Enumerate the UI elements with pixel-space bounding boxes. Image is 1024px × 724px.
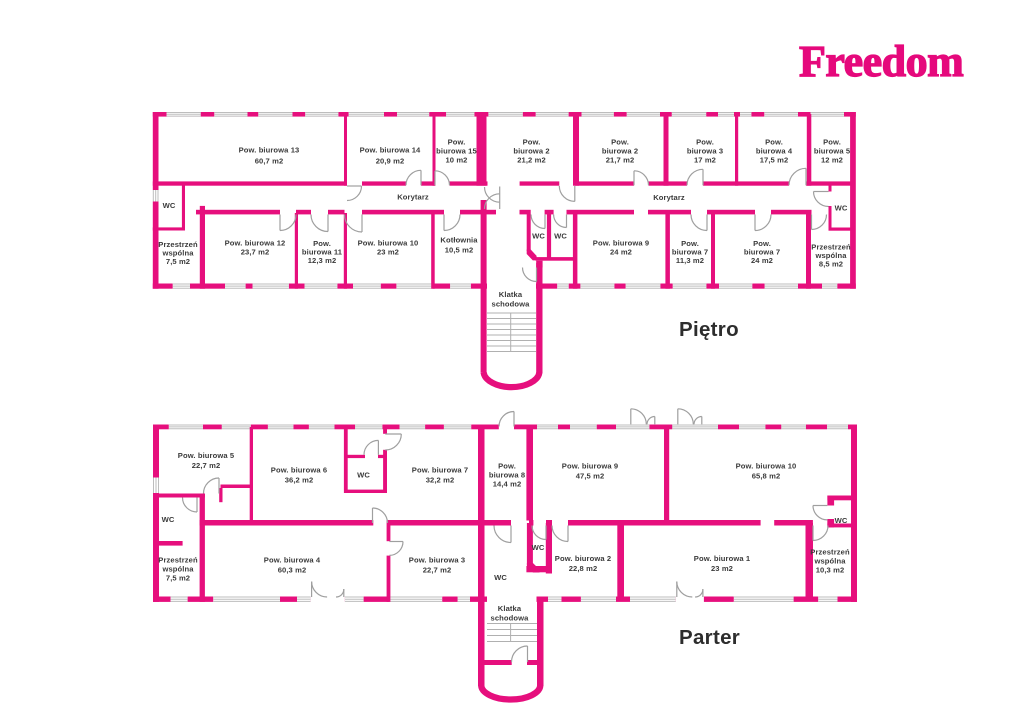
svg-text:Klatka: Klatka — [499, 290, 523, 299]
svg-text:7,5 m2: 7,5 m2 — [166, 257, 190, 266]
svg-text:Pow. biurowa 9: Pow. biurowa 9 — [562, 462, 618, 471]
svg-text:Pow. biurowa 5: Pow. biurowa 5 — [178, 451, 235, 460]
svg-text:Pow.: Pow. — [823, 138, 841, 147]
svg-text:23 m2: 23 m2 — [377, 248, 399, 257]
svg-text:Parter: Parter — [679, 626, 740, 649]
svg-text:Korytarz: Korytarz — [653, 193, 685, 202]
svg-text:10,5 m2: 10,5 m2 — [445, 246, 474, 255]
svg-text:biurowa 5: biurowa 5 — [814, 147, 851, 156]
svg-text:65,8 m2: 65,8 m2 — [752, 472, 781, 481]
svg-text:14,4 m2: 14,4 m2 — [493, 480, 522, 489]
svg-text:Pow. biurowa 13: Pow. biurowa 13 — [239, 146, 300, 155]
svg-text:10,3 m2: 10,3 m2 — [816, 566, 845, 575]
svg-text:32,2 m2: 32,2 m2 — [426, 476, 455, 485]
svg-text:23,7 m2: 23,7 m2 — [241, 248, 270, 257]
svg-text:Pow.: Pow. — [523, 138, 541, 147]
svg-text:23 m2: 23 m2 — [711, 564, 733, 573]
svg-text:22,8 m2: 22,8 m2 — [569, 564, 598, 573]
svg-text:11,3 m2: 11,3 m2 — [676, 256, 704, 265]
svg-text:WC: WC — [554, 232, 567, 241]
svg-text:WC: WC — [494, 573, 507, 582]
svg-text:10 m2: 10 m2 — [445, 156, 467, 165]
svg-text:Pow.: Pow. — [696, 138, 714, 147]
svg-text:24 m2: 24 m2 — [610, 248, 632, 257]
svg-text:biurowa 15: biurowa 15 — [436, 147, 477, 156]
svg-text:Korytarz: Korytarz — [397, 193, 429, 202]
svg-text:Kotłownia: Kotłownia — [440, 236, 478, 245]
svg-text:WC: WC — [163, 201, 176, 210]
svg-text:60,7 m2: 60,7 m2 — [255, 157, 284, 166]
svg-text:47,5 m2: 47,5 m2 — [576, 472, 605, 481]
svg-text:Pow. biurowa 7: Pow. biurowa 7 — [412, 466, 468, 475]
svg-text:20,9 m2: 20,9 m2 — [376, 157, 405, 166]
svg-text:Piętro: Piętro — [679, 318, 739, 341]
svg-text:12,3 m2: 12,3 m2 — [308, 256, 337, 265]
svg-text:8,5 m2: 8,5 m2 — [819, 259, 843, 268]
svg-text:WC: WC — [532, 232, 545, 241]
svg-text:wspólna: wspólna — [813, 557, 846, 566]
svg-text:WC: WC — [162, 515, 175, 524]
svg-text:Przestrzeń: Przestrzeń — [158, 556, 198, 565]
svg-text:22,7 m2: 22,7 m2 — [192, 461, 221, 470]
svg-text:biurowa 2: biurowa 2 — [602, 147, 638, 156]
svg-text:WC: WC — [835, 516, 848, 525]
svg-text:21,2 m2: 21,2 m2 — [517, 156, 546, 165]
svg-text:Freedom: Freedom — [799, 37, 963, 86]
svg-text:Pow. biurowa 3: Pow. biurowa 3 — [409, 556, 465, 565]
svg-text:Przestrzeń: Przestrzeń — [810, 548, 850, 557]
svg-text:Pow.: Pow. — [611, 138, 629, 147]
svg-text:Pow. biurowa 4: Pow. biurowa 4 — [264, 556, 321, 565]
svg-text:Pow. biurowa 9: Pow. biurowa 9 — [593, 239, 649, 248]
svg-text:schodowa: schodowa — [492, 300, 531, 309]
svg-text:7,5 m2: 7,5 m2 — [166, 574, 190, 583]
svg-text:24 m2: 24 m2 — [751, 256, 773, 265]
svg-text:biurowa 3: biurowa 3 — [687, 147, 723, 156]
svg-text:WC: WC — [532, 543, 545, 552]
svg-text:Pow.: Pow. — [448, 138, 466, 147]
svg-text:Pow. biurowa 1: Pow. biurowa 1 — [694, 554, 751, 563]
svg-text:Klatka: Klatka — [498, 604, 522, 613]
svg-text:wspólna: wspólna — [161, 565, 194, 574]
svg-text:60,3 m2: 60,3 m2 — [278, 566, 307, 575]
svg-text:12 m2: 12 m2 — [821, 156, 843, 165]
svg-text:Pow. biurowa 2: Pow. biurowa 2 — [555, 554, 611, 563]
svg-text:schodowa: schodowa — [491, 614, 530, 623]
svg-text:WC: WC — [835, 204, 848, 213]
svg-text:17 m2: 17 m2 — [694, 156, 716, 165]
svg-text:Pow. biurowa 10: Pow. biurowa 10 — [736, 462, 797, 471]
svg-text:Pow.: Pow. — [498, 462, 516, 471]
svg-text:Pow. biurowa 14: Pow. biurowa 14 — [360, 146, 421, 155]
svg-text:biurowa 4: biurowa 4 — [756, 147, 793, 156]
svg-text:36,2 m2: 36,2 m2 — [285, 476, 314, 485]
svg-text:22,7 m2: 22,7 m2 — [423, 566, 452, 575]
svg-text:21,7 m2: 21,7 m2 — [606, 156, 635, 165]
svg-text:Pow. biurowa 6: Pow. biurowa 6 — [271, 466, 327, 475]
svg-text:Pow. biurowa 10: Pow. biurowa 10 — [358, 239, 419, 248]
svg-text:17,5 m2: 17,5 m2 — [760, 156, 789, 165]
svg-text:biurowa 8: biurowa 8 — [489, 471, 525, 480]
svg-text:biurowa 2: biurowa 2 — [513, 147, 549, 156]
svg-text:Pow. biurowa 12: Pow. biurowa 12 — [225, 239, 286, 248]
svg-text:WC: WC — [357, 471, 370, 480]
svg-text:Pow.: Pow. — [765, 138, 783, 147]
